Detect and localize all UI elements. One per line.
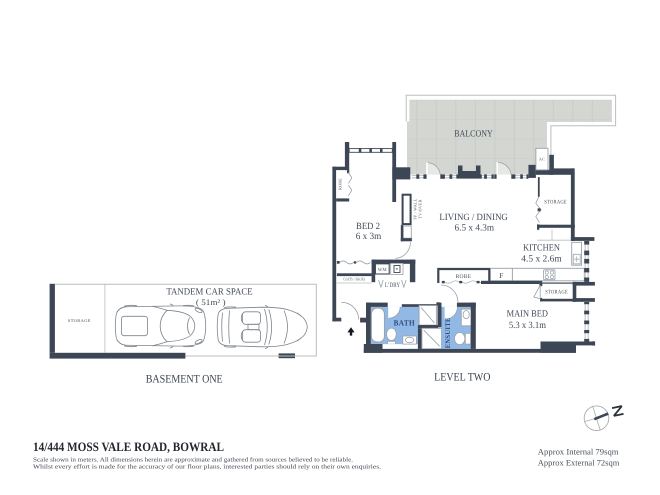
svg-text:ENSUITE: ENSUITE [444, 317, 452, 348]
svg-text:BATH: BATH [394, 318, 416, 327]
svg-text:ROBE: ROBE [456, 274, 472, 280]
svg-text:6.5 x 4.3m: 6.5 x 4.3m [455, 224, 495, 234]
svg-text:STORAGE: STORAGE [544, 200, 567, 206]
svg-text:ROBE: ROBE [338, 178, 343, 190]
svg-text:4.5 x 2.6m: 4.5 x 2.6m [521, 254, 562, 264]
svg-text:6 x 3m: 6 x 3m [356, 232, 382, 242]
svg-text:STORAGE: STORAGE [68, 318, 91, 323]
svg-text:MAIN BED: MAIN BED [507, 309, 548, 319]
svg-text:TANDEM CAR SPACE: TANDEM CAR SPACE [166, 288, 252, 298]
svg-text:STORAGE: STORAGE [545, 290, 568, 296]
svg-text:WM: WM [378, 267, 388, 273]
svg-text:F: F [499, 271, 503, 280]
svg-text:COATS / SHOES: COATS / SHOES [343, 277, 365, 282]
svg-text:Whilst every effort is made fo: Whilst every effort is made for the accu… [33, 463, 382, 470]
svg-text:Approx Internal 79sqm: Approx Internal 79sqm [538, 448, 619, 457]
svg-text:LIVING / DINING: LIVING / DINING [439, 213, 508, 223]
svg-text:LEVEL TWO: LEVEL TWO [434, 371, 490, 383]
svg-text:14/444 MOSS VALE ROAD, BOWRAL: 14/444 MOSS VALE ROAD, BOWRAL [33, 440, 224, 454]
svg-text:Approx External 72sqm: Approx External 72sqm [538, 458, 620, 467]
svg-text:AC: AC [539, 157, 545, 162]
svg-text:BASEMENT ONE: BASEMENT ONE [146, 373, 223, 385]
svg-text:KITCHEN: KITCHEN [523, 244, 560, 254]
svg-text:BED 2: BED 2 [356, 222, 380, 232]
svg-text:BALCONY: BALCONY [454, 130, 493, 140]
svg-text:( 51m² ): ( 51m² ) [196, 297, 226, 307]
svg-text:Scale shown in meters. All dim: Scale shown in meters. All dimensions he… [33, 456, 354, 463]
svg-text:L’DRY: L’DRY [385, 282, 401, 289]
svg-text:5.3 x 3.1m: 5.3 x 3.1m [509, 321, 547, 331]
svg-text:TV OVER: TV OVER [418, 199, 423, 218]
